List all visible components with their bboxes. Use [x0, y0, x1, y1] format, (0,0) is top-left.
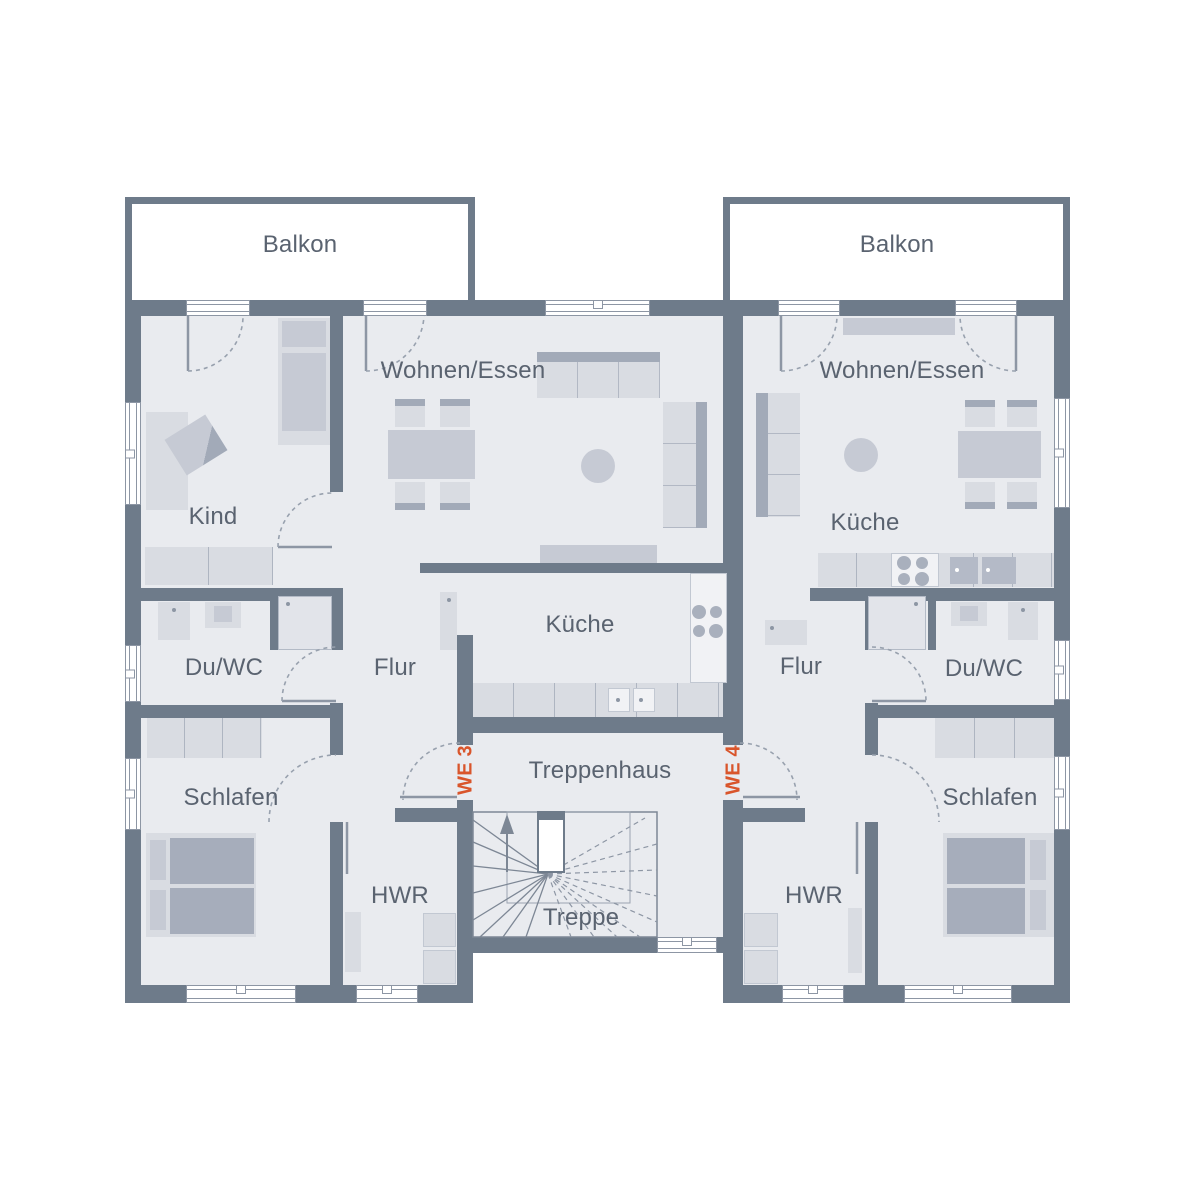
- dining-table-left: [388, 430, 475, 479]
- room-label-wohnen-left: Wohnen/Essen: [381, 357, 546, 385]
- sink-duwc-right: [1008, 602, 1038, 640]
- unit-label-we3: WE 3: [455, 745, 478, 795]
- window-kind: [125, 402, 141, 505]
- wall-flur-left-b: [330, 703, 343, 755]
- window-handle: [125, 669, 135, 678]
- chair: [395, 399, 425, 427]
- wall-duwc-schlafen-left: [141, 705, 343, 718]
- kitchen-dishwasher-left: [633, 688, 655, 712]
- pillow: [150, 840, 166, 880]
- window-stairwell: [657, 937, 717, 953]
- cabinet-hwr-left: [345, 912, 361, 972]
- window-handle: [125, 449, 135, 458]
- cabinet-hwr-right: [848, 908, 862, 973]
- sideboard-wohnen-right: [843, 318, 955, 335]
- room-label-duwc-left: Du/WC: [185, 654, 263, 682]
- pillow: [1030, 840, 1046, 880]
- wall-shower-stub-right: [928, 596, 936, 650]
- party-wall-lower: [723, 800, 743, 1003]
- pillow: [150, 890, 166, 930]
- room-label-hwr-right: HWR: [785, 882, 843, 910]
- window-handle: [953, 985, 963, 994]
- room-label-schlafen-left: Schlafen: [184, 784, 279, 812]
- kitchen-south-wall: [457, 717, 743, 733]
- washer-hwr-left: [423, 913, 456, 947]
- window-handle: [125, 790, 135, 799]
- window-handle: [593, 300, 603, 309]
- room-label-kueche-left: Küche: [545, 611, 614, 639]
- window-top-left-unit: [545, 300, 650, 316]
- room-label-wohnen-right: Wohnen/Essen: [820, 357, 985, 385]
- window-duwc-left: [125, 645, 141, 702]
- washer-hwr-right: [744, 913, 778, 947]
- kitchen-counter-column-left: [690, 573, 727, 683]
- sofa-wohnen-right: [756, 393, 800, 517]
- cabinet-flur-right: [765, 620, 807, 645]
- balcony-door-window-wohnen-left: [363, 300, 427, 316]
- dryer-hwr-right: [744, 950, 778, 984]
- sink-duwc-left: [158, 602, 190, 640]
- tv-board-left: [540, 545, 657, 563]
- chair: [1007, 482, 1037, 509]
- room-label-kueche-right: Küche: [830, 509, 899, 537]
- dining-table-right: [958, 431, 1041, 478]
- window-schlafen-right-side: [1054, 756, 1070, 830]
- wall-shower-stub-left: [270, 596, 278, 650]
- chair: [965, 400, 995, 427]
- wall-flur-right-b: [865, 703, 878, 755]
- room-label-schlafen-right: Schlafen: [943, 784, 1038, 812]
- chair: [440, 399, 470, 427]
- sofa-wohnen-left-side: [663, 402, 707, 528]
- window-handle: [1054, 789, 1064, 798]
- room-label-treppe: Treppe: [543, 904, 619, 932]
- bed-kind-pillow: [282, 321, 326, 347]
- window-schlafen-left-side: [125, 758, 141, 830]
- mattress: [947, 888, 1025, 934]
- window-schlafen-right-bottom: [904, 985, 1012, 1003]
- window-wohnen-right: [1054, 398, 1070, 508]
- stove-cell-right: [891, 553, 939, 587]
- window-handle: [236, 985, 246, 994]
- shower-duwc-left: [278, 596, 332, 650]
- room-label-flur-left: Flur: [374, 654, 416, 682]
- window-handle: [382, 985, 392, 994]
- room-label-flur-right: Flur: [780, 653, 822, 681]
- stairwell-west-wall-lower: [457, 800, 473, 1003]
- window-hwr-right-bottom: [782, 985, 844, 1003]
- room-label-kind: Kind: [189, 503, 238, 531]
- window-handle: [682, 937, 692, 946]
- dryer-hwr-left: [423, 950, 456, 984]
- wall-flur-left-c: [330, 822, 343, 985]
- window-handle: [1054, 449, 1064, 458]
- mattress: [170, 838, 254, 884]
- room-label-balcony-right: Balkon: [860, 231, 935, 259]
- kitchen-counter-row-left: [473, 683, 723, 717]
- bed-kind-mattress: [282, 353, 326, 431]
- window-handle: [1054, 666, 1064, 675]
- toilet-lid-left: [214, 606, 232, 622]
- window-handle: [808, 985, 818, 994]
- toilet-lid-right: [960, 606, 978, 621]
- room-label-balcony-left: Balkon: [263, 231, 338, 259]
- mattress: [947, 838, 1025, 884]
- shower-duwc-right: [868, 596, 926, 650]
- window-duwc-right: [1054, 640, 1070, 700]
- wall-kind-east: [330, 316, 343, 492]
- chair: [395, 482, 425, 510]
- window-hwr-left-bottom: [356, 985, 418, 1003]
- sideboard-kind: [145, 547, 273, 585]
- wall-hwr-north-left: [395, 808, 457, 822]
- chair: [965, 482, 995, 509]
- kitchen-sink-right: [950, 557, 978, 584]
- cabinet-flur-left: [440, 592, 457, 650]
- exterior-notch: [473, 953, 723, 1003]
- chair: [1007, 400, 1037, 427]
- wall-hwr-north-right: [743, 808, 805, 822]
- kitchen-oven-right: [982, 557, 1016, 584]
- window-schlafen-left-bottom: [186, 985, 296, 1003]
- exterior-wall-bottom-right: [727, 985, 1070, 1003]
- wardrobe-schlafen-right: [935, 718, 1054, 758]
- wall-duwc-schlafen-right: [865, 705, 1070, 718]
- balcony-door-window-kind: [186, 300, 250, 316]
- room-label-hwr-left: HWR: [371, 882, 429, 910]
- balcony-door-window-right-1: [778, 300, 840, 316]
- sofa-wohnen-left: [537, 352, 660, 398]
- chair: [440, 482, 470, 510]
- mattress: [170, 888, 254, 934]
- pillow: [1030, 890, 1046, 930]
- coffee-table-right: [844, 438, 878, 472]
- room-label-treppenhaus: Treppenhaus: [529, 757, 672, 785]
- wardrobe-schlafen-left: [147, 718, 262, 758]
- kitchen-sink-left: [608, 688, 630, 712]
- floor-plan: Balkon Balkon Kind Wohnen/Essen Küche Du…: [0, 0, 1200, 1200]
- coffee-table-left: [581, 449, 615, 483]
- unit-label-we4: WE 4: [723, 745, 746, 795]
- balcony-door-window-right-2: [955, 300, 1017, 316]
- kitchen-north-wall: [420, 563, 723, 573]
- wall-flur-right-c: [865, 822, 878, 985]
- room-label-duwc-right: Du/WC: [945, 655, 1023, 683]
- exterior-wall-bottom-left: [125, 985, 473, 1003]
